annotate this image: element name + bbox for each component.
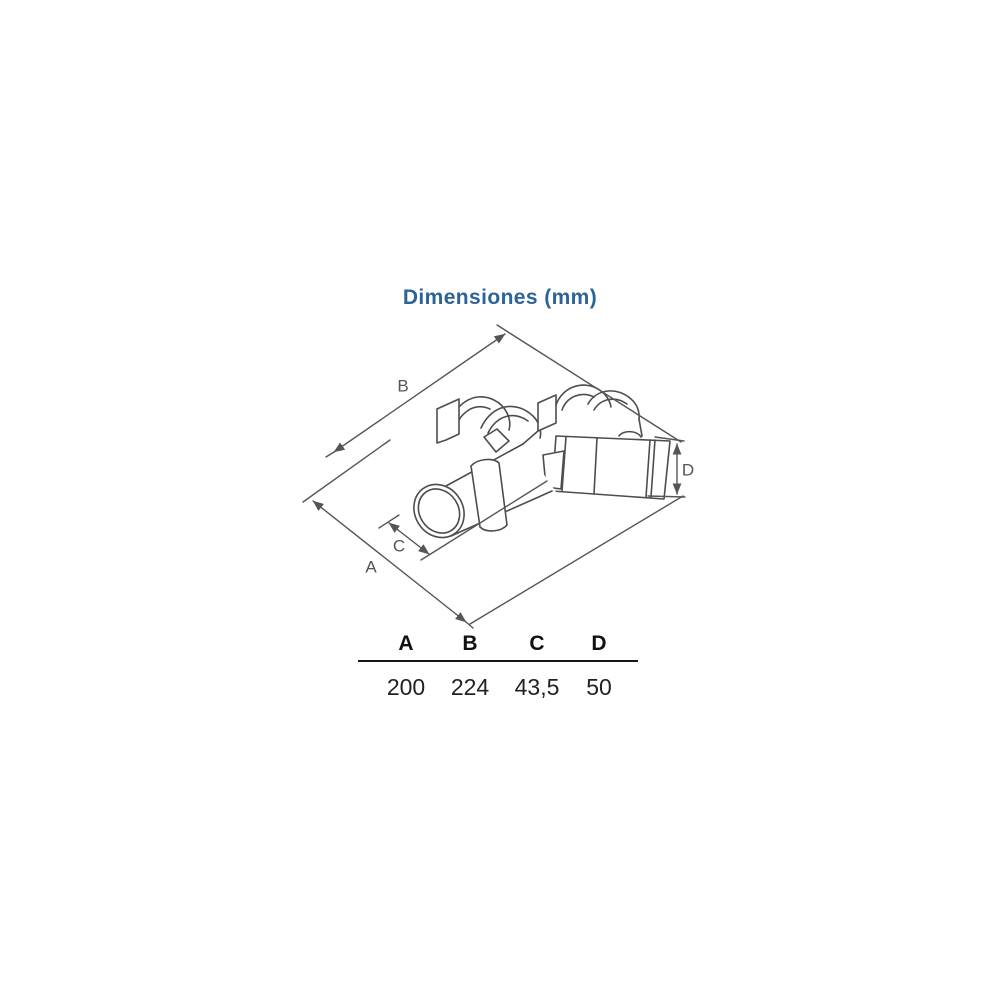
table-header-B: B <box>462 632 477 656</box>
right-barb-outer-ridge <box>556 385 611 407</box>
left-barb-left-wing <box>437 399 459 443</box>
right-barb-base <box>639 419 642 436</box>
dimensions-table: A B C D 200 224 43,5 50 <box>356 632 640 702</box>
stub-B-lower <box>326 452 334 457</box>
table-header-A: A <box>398 632 413 656</box>
dim-label-C: C <box>393 538 405 555</box>
body-top-edge <box>523 431 538 444</box>
table-header-C: C <box>529 632 544 656</box>
table-value-B: 224 <box>451 674 489 701</box>
table-value-D: 50 <box>586 674 612 701</box>
ext-line-top-right <box>497 325 681 442</box>
dim-line-B <box>334 334 505 452</box>
table-header-D: D <box>591 632 606 656</box>
ext-line-D-bottom <box>648 496 685 497</box>
right-barb-outer-ridge2 <box>588 391 639 419</box>
cylinder-top-nub <box>619 432 641 437</box>
table-divider <box>358 660 638 662</box>
dim-label-D: D <box>682 462 694 479</box>
ext-line-C-upper <box>379 515 399 528</box>
ext-line-left <box>303 440 390 502</box>
pipe-fitting-dimension-drawing <box>0 0 1000 1000</box>
table-value-A: 200 <box>387 674 425 701</box>
dim-label-B: B <box>397 378 408 395</box>
right-barb-left-wing <box>538 395 556 431</box>
table-value-C: 43,5 <box>515 674 560 701</box>
dim-label-A: A <box>365 559 376 576</box>
